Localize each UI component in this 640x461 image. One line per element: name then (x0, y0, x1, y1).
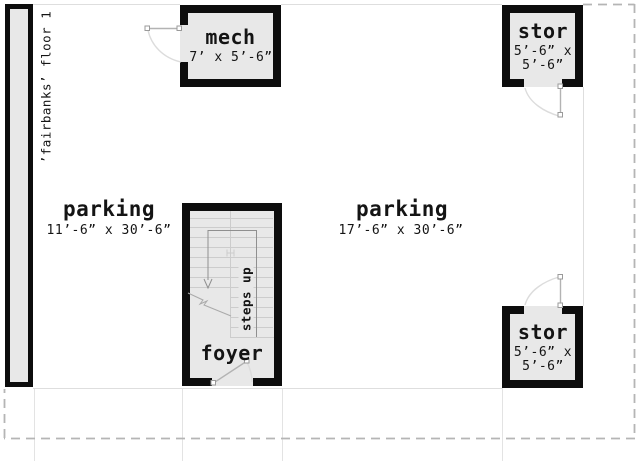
storage-top-label: stor (510, 21, 576, 41)
steps-up-label: steps up (239, 265, 254, 333)
mech-door-swing-icon (145, 26, 182, 62)
storage-bottom-dimensions-line2: 5’-6” (508, 360, 578, 374)
parking-left-dimensions: 11’-6” x 30’-6” (34, 224, 184, 238)
storage-bottom-dimensions-line1: 5’-6” x (508, 346, 578, 360)
storage-top-door-opening (524, 79, 562, 87)
floor-plan: ’fairbanks’ floor 1 mech 7’ x 5’-6” stor… (0, 0, 640, 461)
mech-room-dimensions: 7’ x 5’-6” (186, 51, 276, 65)
storage-bottom-door-swing-icon (525, 275, 563, 308)
mech-room-label: mech (188, 27, 273, 47)
storage-bottom-door-opening (524, 306, 562, 314)
storage-top-dimensions-line2: 5’-6” (508, 59, 578, 73)
left-exterior-wall (5, 4, 33, 387)
foyer-door-opening (212, 378, 253, 386)
plan-title: ’fairbanks’ floor 1 (39, 11, 54, 164)
storage-top-door-swing-icon (525, 84, 563, 117)
storage-top-dimensions-line1: 5’-6” x (508, 45, 578, 59)
parking-left-label: parking (39, 199, 179, 220)
foyer-label: foyer (190, 343, 274, 363)
storage-bottom-label: stor (510, 322, 576, 342)
parking-right-label: parking (332, 199, 472, 220)
extension-lines (35, 388, 503, 461)
parking-right-dimensions: 17’-6” x 30’-6” (326, 224, 476, 238)
